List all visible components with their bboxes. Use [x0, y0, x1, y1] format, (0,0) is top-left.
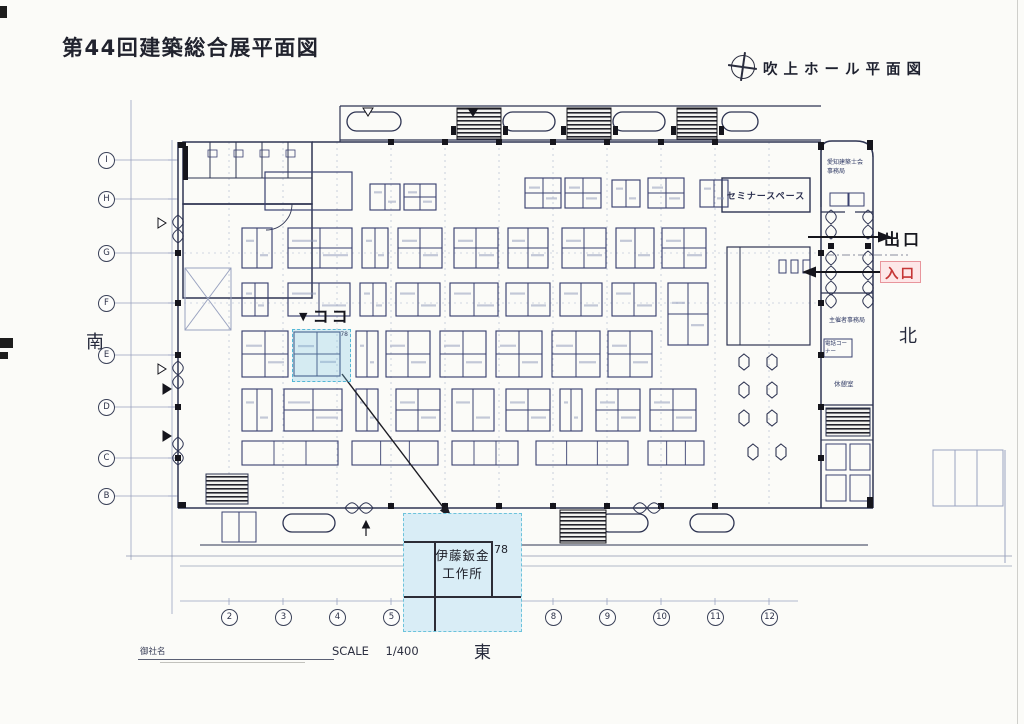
- callout-line: [404, 541, 491, 543]
- hall-plan-title: 吹上ホール平面図: [763, 58, 927, 79]
- booth-number-small: 78: [340, 331, 348, 338]
- entrance-label: 入口: [880, 261, 921, 283]
- seminar-space-label: セミナースペース: [722, 189, 810, 202]
- scale-note: SCALE 1/400: [332, 644, 419, 658]
- organizer-office-label: 主催者事務局: [829, 315, 865, 324]
- company-name-field-label: 御社名: [140, 645, 166, 657]
- grid-row-label-H: H: [98, 191, 115, 208]
- grid-col-label-4: 4: [329, 609, 346, 626]
- scan-artifact: [0, 6, 7, 18]
- direction-east: 東: [474, 638, 491, 663]
- grid-col-label-3: 3: [275, 609, 292, 626]
- scan-artifact: [0, 338, 13, 348]
- grid-row-label-F: F: [98, 295, 115, 312]
- booth-name-line2: 工作所: [432, 565, 493, 583]
- here-triangle-icon: ▼: [299, 310, 307, 323]
- exit-label: 出口: [884, 226, 922, 250]
- callout-line: [404, 596, 521, 598]
- grid-row-label-B: B: [98, 488, 115, 505]
- here-marker: ▼ ココ: [299, 303, 351, 327]
- grid-row-label-I: I: [98, 152, 115, 169]
- lounge-label: 休憩室: [834, 378, 854, 388]
- association-office-line1: 愛知建築士会: [827, 158, 863, 167]
- association-office-label: 愛知建築士会 事務局: [827, 158, 863, 176]
- scanned-floorplan-page: 第44回建築総合展平面図 吹上ホール平面図 南 北 東 出口 入口 ▼ ココ セ…: [0, 0, 1024, 724]
- grid-row-label-C: C: [98, 450, 115, 467]
- scan-artifact: [0, 352, 8, 359]
- company-name-underline: [138, 659, 334, 660]
- phone-corner-label: 電話コーナー: [825, 341, 851, 356]
- grid-col-label-2: 2: [221, 609, 238, 626]
- booth-number: 78: [494, 543, 508, 556]
- scan-edge-line: [1017, 0, 1018, 724]
- grid-col-label-11: 11: [707, 609, 724, 626]
- booth-name-line1: 伊藤鈑金: [432, 547, 493, 565]
- here-label: ココ: [313, 307, 351, 326]
- association-office-line2: 事務局: [827, 167, 863, 176]
- grid-row-label-E: E: [98, 347, 115, 364]
- booth-callout: 伊藤鈑金 工作所 78: [403, 513, 522, 632]
- scale-label: SCALE: [332, 644, 369, 658]
- company-name-underline-ghost: [160, 662, 305, 663]
- scale-value: 1/400: [386, 644, 419, 658]
- direction-north: 北: [899, 322, 917, 348]
- grid-row-label-G: G: [98, 245, 115, 262]
- booth-name: 伊藤鈑金 工作所: [432, 547, 493, 583]
- page-title: 第44回建築総合展平面図: [62, 32, 319, 62]
- grid-col-label-12: 12: [761, 609, 778, 626]
- compass-icon: [731, 55, 755, 79]
- grid-col-label-9: 9: [599, 609, 616, 626]
- grid-col-label-8: 8: [545, 609, 562, 626]
- grid-col-label-10: 10: [653, 609, 670, 626]
- booth-highlight-small: 78: [292, 329, 351, 382]
- grid-row-label-D: D: [98, 399, 115, 416]
- grid-col-label-5: 5: [383, 609, 400, 626]
